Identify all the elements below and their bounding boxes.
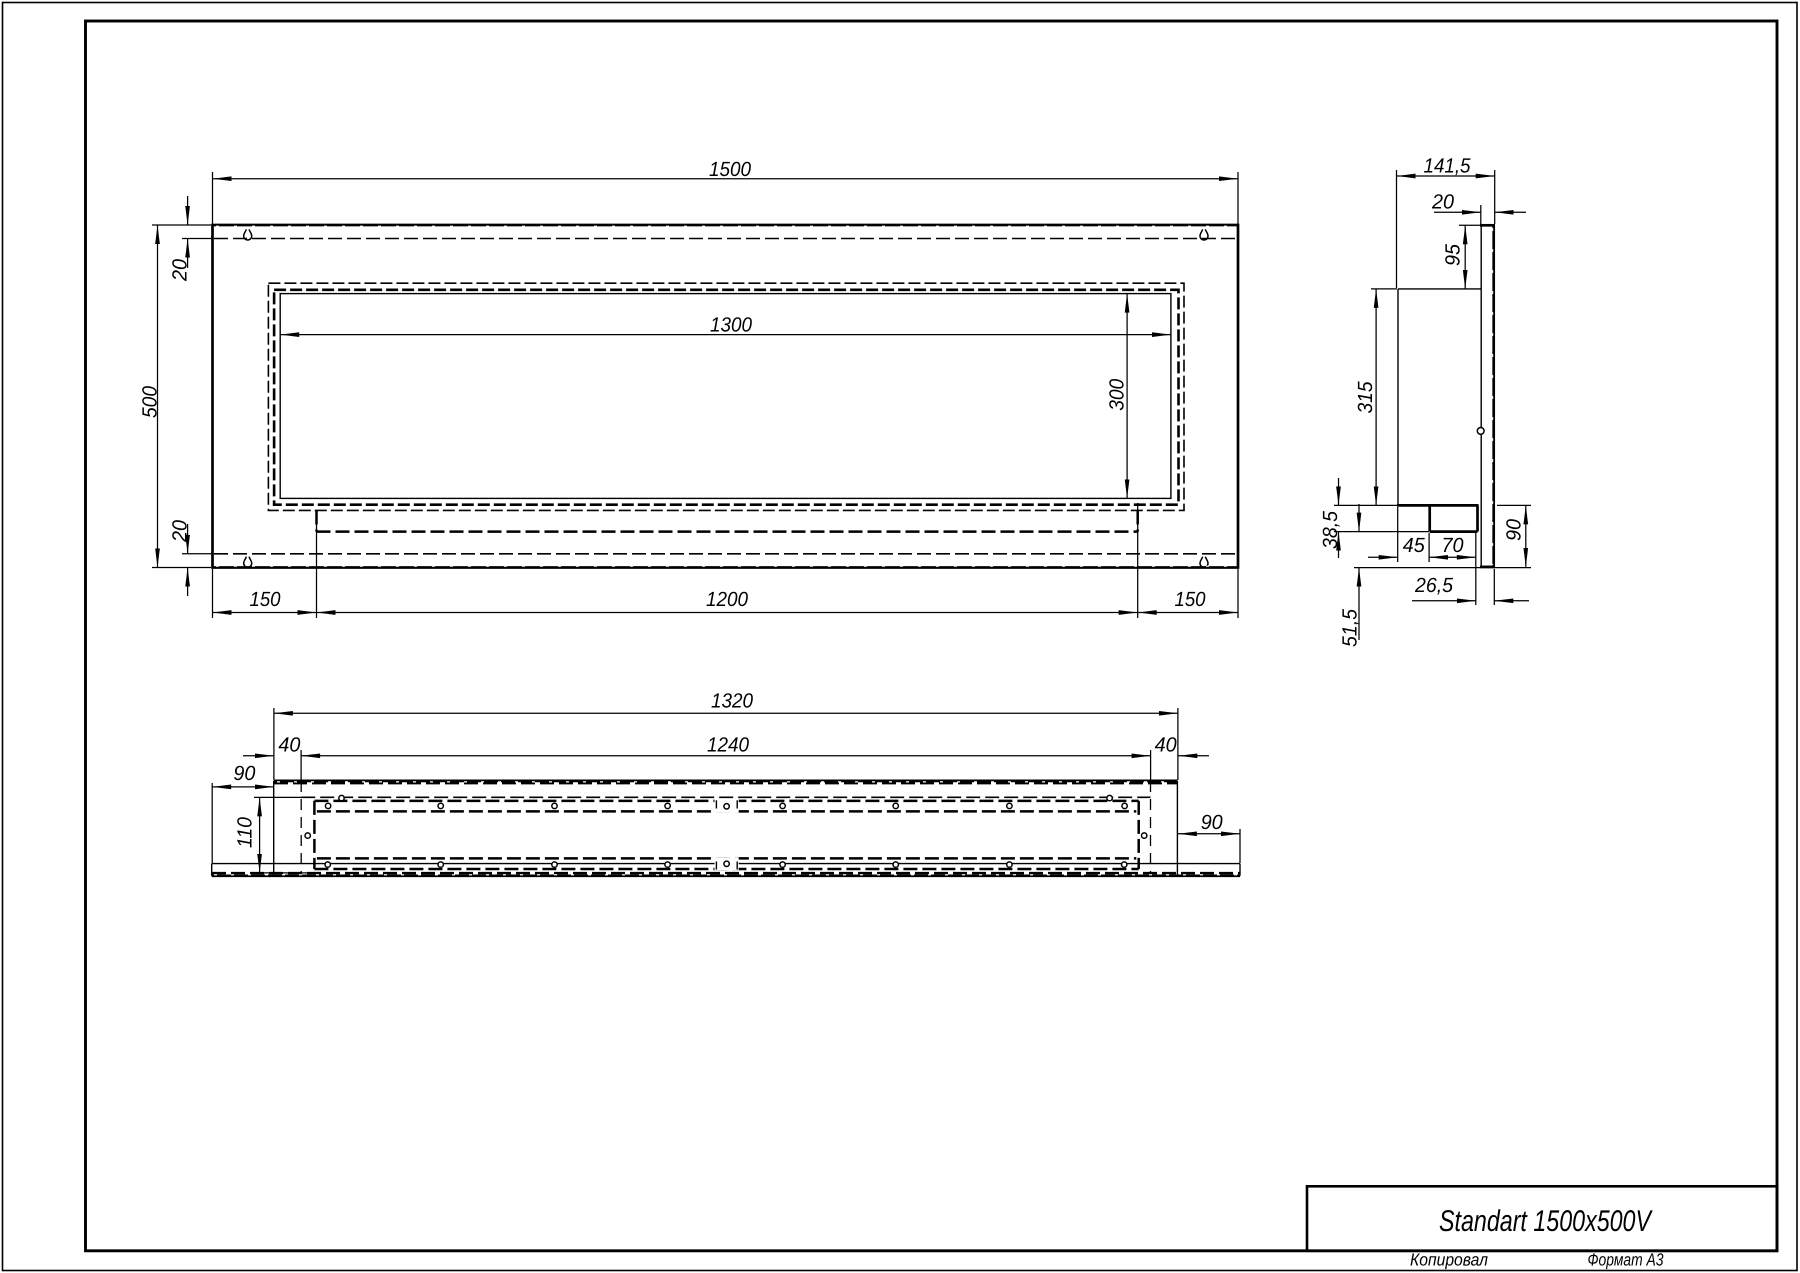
svg-text:Standart 1500x500V: Standart 1500x500V [1439,1205,1653,1238]
svg-text:315: 315 [1354,381,1377,414]
svg-text:38,5: 38,5 [1319,510,1342,549]
svg-text:20: 20 [1431,191,1455,214]
svg-text:90: 90 [233,762,256,785]
svg-text:Копировал: Копировал [1410,1250,1488,1270]
svg-text:1200: 1200 [706,588,749,611]
svg-text:1320: 1320 [711,690,754,713]
svg-text:500: 500 [139,385,162,418]
svg-text:20: 20 [169,258,192,282]
svg-text:90: 90 [1201,811,1224,834]
svg-text:70: 70 [1442,534,1465,557]
svg-text:150: 150 [250,588,282,611]
svg-text:95: 95 [1442,243,1465,266]
svg-text:20: 20 [169,519,192,543]
svg-text:51,5: 51,5 [1339,608,1362,647]
svg-text:1240: 1240 [707,734,750,757]
svg-text:110: 110 [234,816,257,848]
svg-text:Формат А3: Формат А3 [1588,1250,1664,1270]
svg-text:40: 40 [278,734,301,757]
svg-text:26,5: 26,5 [1414,574,1454,597]
svg-text:150: 150 [1175,588,1207,611]
svg-text:300: 300 [1106,378,1129,411]
svg-text:90: 90 [1503,518,1526,541]
svg-text:40: 40 [1155,734,1178,757]
svg-text:45: 45 [1403,534,1426,557]
svg-text:1300: 1300 [710,314,753,337]
svg-text:141,5: 141,5 [1424,155,1472,178]
svg-text:1500: 1500 [709,158,752,181]
